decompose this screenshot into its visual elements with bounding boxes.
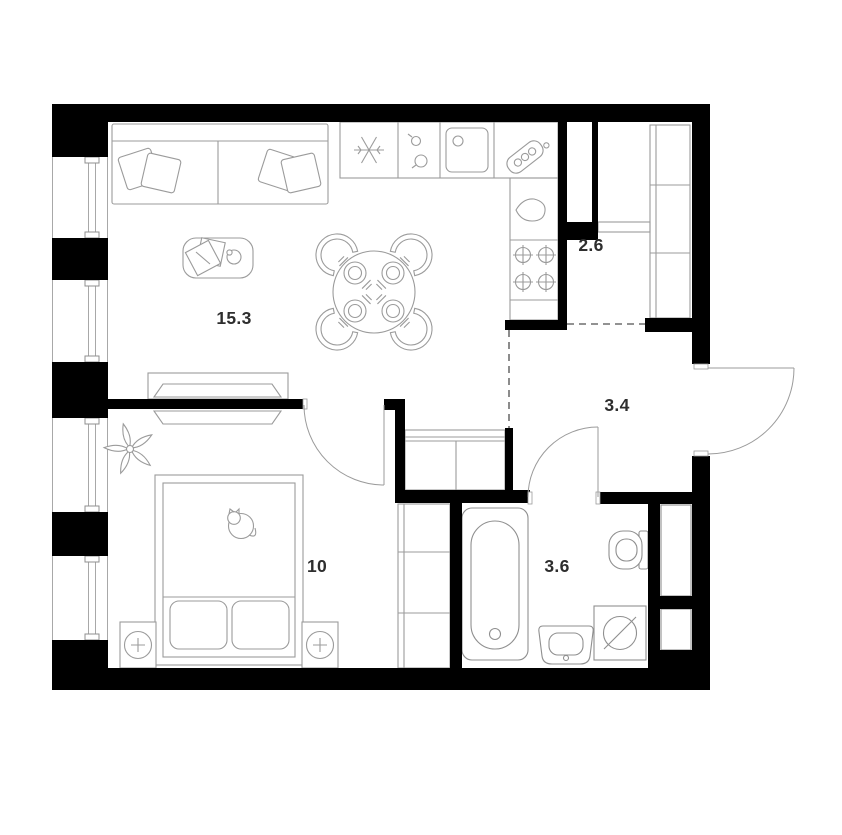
label-living-area: 15.3 [216, 308, 251, 328]
bathroom-door [528, 427, 600, 504]
window-icon [85, 418, 99, 512]
wall-door-stub [384, 399, 405, 410]
bathtub [462, 508, 528, 660]
wall-bathroom-right [648, 503, 660, 668]
kitchen-sink-icon [446, 128, 488, 172]
pillow-icon [232, 601, 289, 649]
floorplan-svg: 15.3 2.6 3.4 10 3.6 [0, 0, 842, 835]
wall-shaft-bottom [660, 650, 692, 668]
tv-console [148, 373, 288, 399]
wall-storage-bottom [645, 318, 692, 332]
wall-right-upper [692, 104, 710, 364]
wall-bottom [52, 668, 710, 690]
label-bathroom-area: 3.6 [544, 556, 569, 576]
wash-basin [539, 626, 593, 664]
vent-shaft-icon [661, 505, 691, 650]
bed [155, 475, 303, 665]
window-icon [85, 280, 99, 362]
toilet [609, 531, 648, 569]
washing-machine-icon [594, 606, 646, 660]
tv-icon [154, 411, 281, 424]
stove-burners-icon [513, 245, 556, 292]
wall-bathroom-top-right [598, 492, 710, 504]
wall-closet-left [395, 409, 405, 495]
coffee-machine-icon [504, 134, 552, 177]
wall-bedroom-living [100, 399, 303, 409]
label-storage-area: 2.6 [578, 235, 603, 255]
bedroom-door [303, 399, 384, 485]
window-icon [85, 157, 99, 238]
wall-closet-right [505, 428, 513, 492]
tv-icon [154, 384, 281, 397]
wall-left-segment [52, 640, 108, 690]
plant-icon [104, 423, 154, 474]
wall-left-segment [52, 238, 108, 280]
wall-bathroom-top-left [395, 490, 530, 503]
hall-closet [405, 430, 505, 490]
wall-right-lower [692, 456, 710, 690]
kettle-drop-icon [516, 199, 545, 221]
wall-left-segment [52, 104, 108, 157]
floorplan-canvas: 15.3 2.6 3.4 10 3.6 [0, 0, 842, 835]
storage-shelving [598, 125, 690, 318]
wall-left-segment [52, 362, 108, 418]
fridge-snowflake-icon [354, 137, 384, 163]
bedroom-wardrobe [398, 504, 450, 668]
wall-bathroom-left [450, 503, 462, 668]
coffee-table [183, 238, 253, 278]
window-icon [85, 556, 99, 640]
wall-shaft-divider [660, 596, 692, 609]
wall-kitchen-stub [505, 320, 567, 330]
entrance-door [694, 364, 794, 456]
cup-icon [227, 250, 241, 264]
wall-top [52, 104, 710, 122]
wall-left-segment [52, 512, 108, 556]
hob-knobs-icon [408, 134, 427, 168]
pillow-icon [170, 601, 227, 649]
sofa [112, 124, 328, 204]
label-hallway-area: 3.4 [604, 395, 629, 415]
label-bedroom-area: 10 [307, 556, 327, 576]
wall-kitchen-storage [558, 122, 567, 323]
dining-table [307, 225, 440, 358]
